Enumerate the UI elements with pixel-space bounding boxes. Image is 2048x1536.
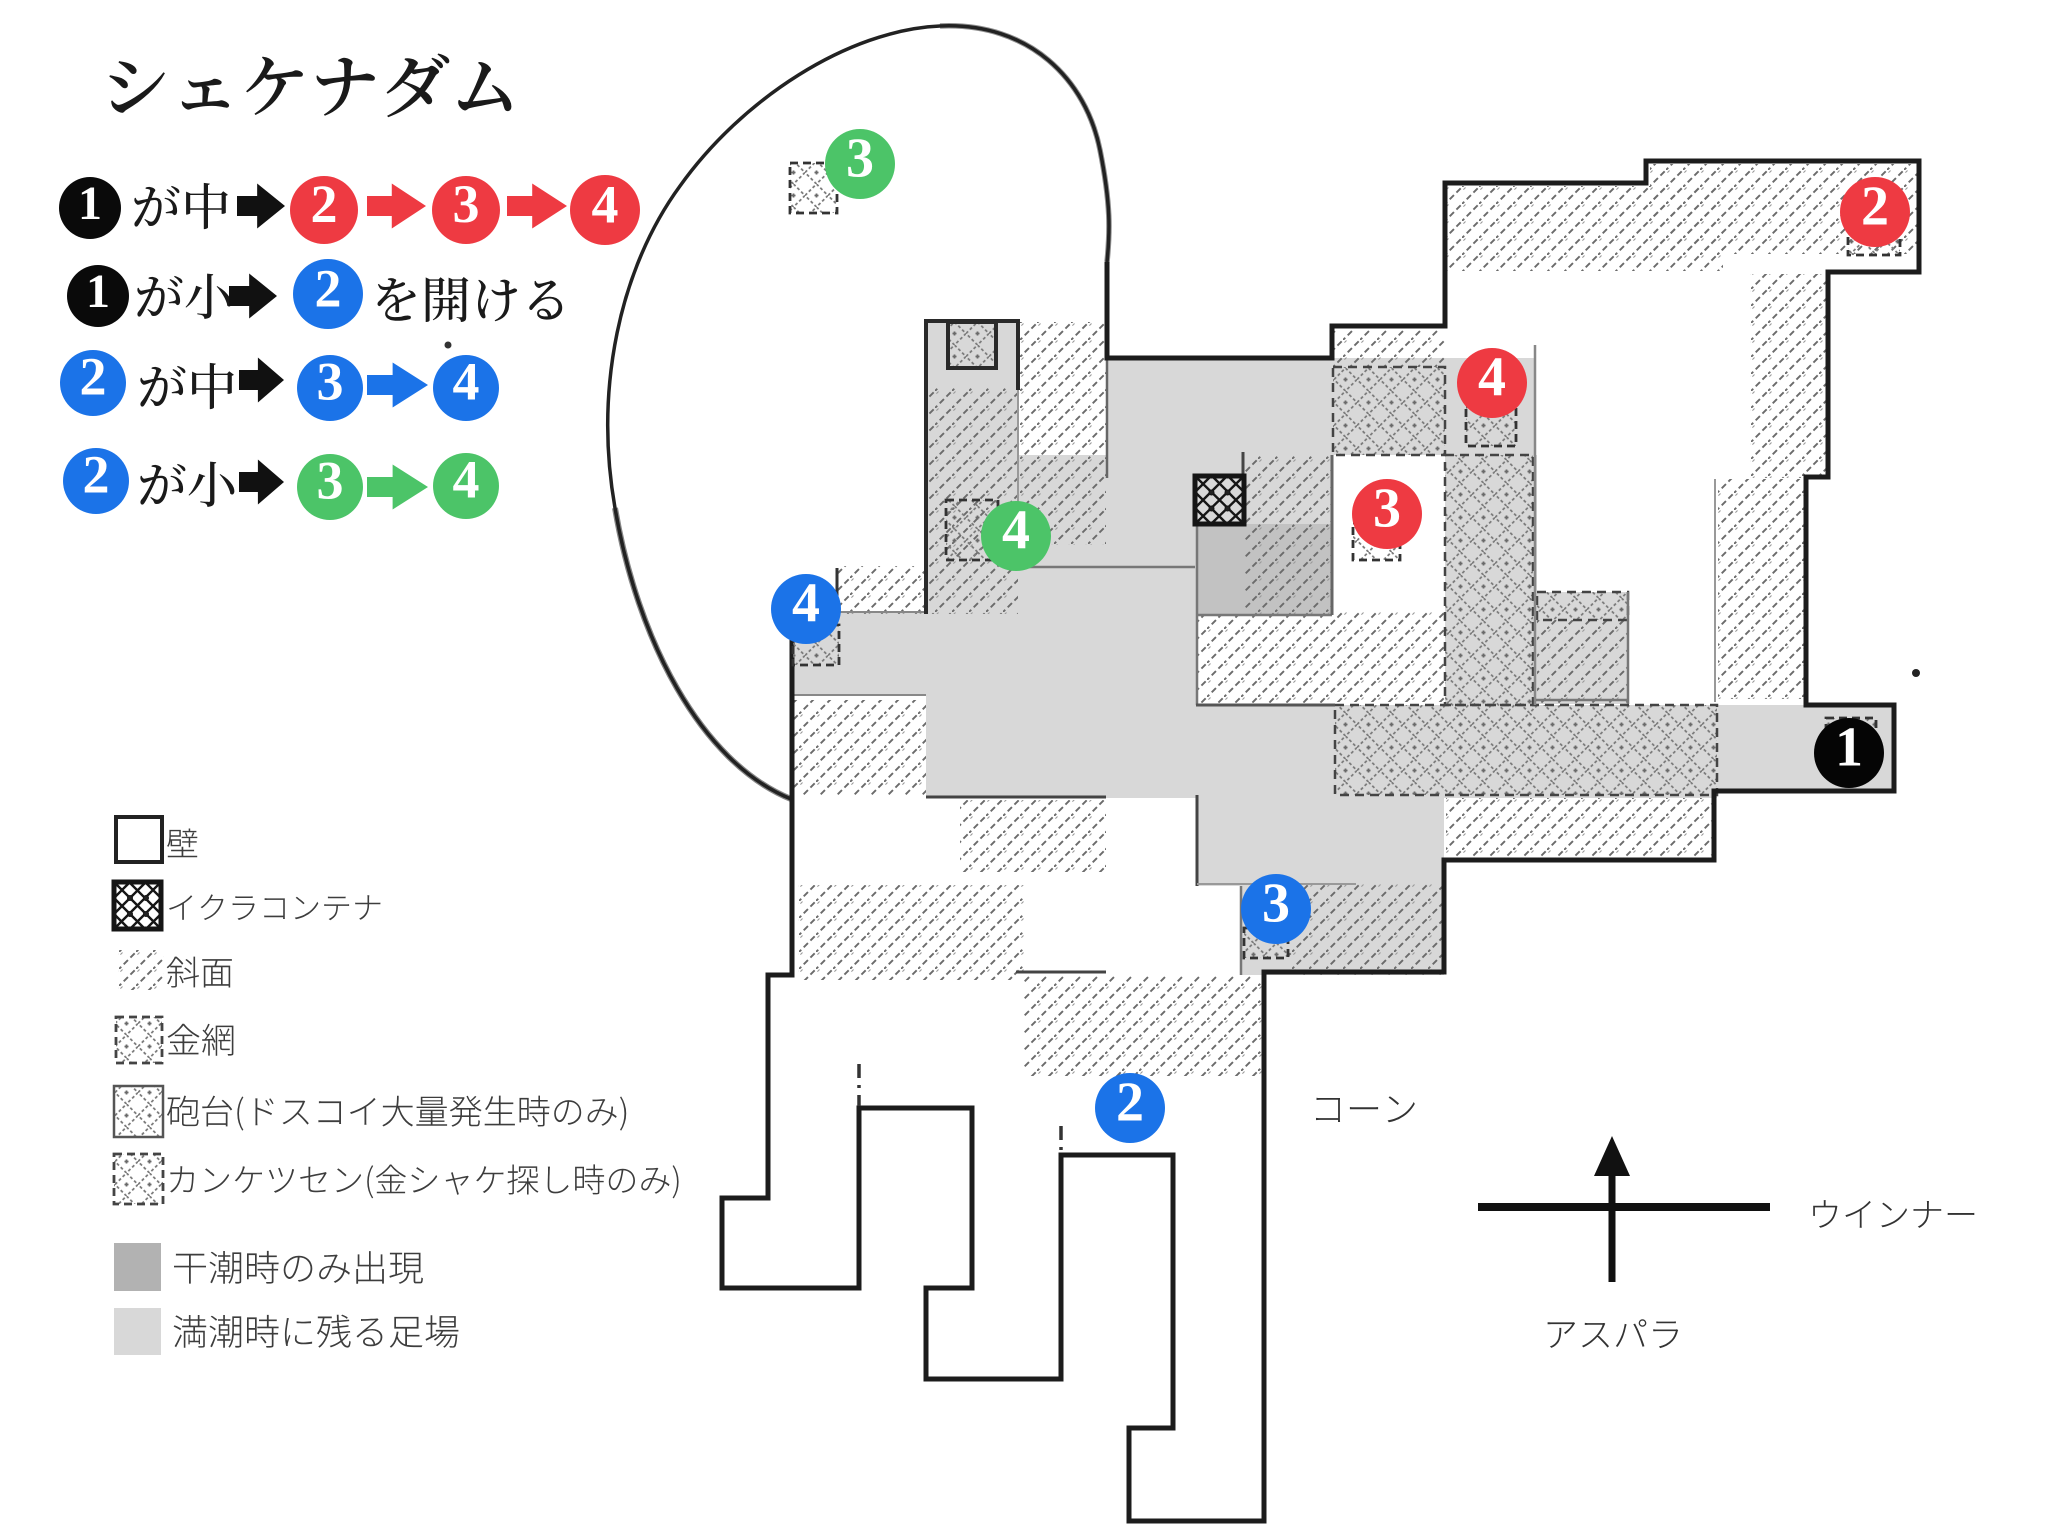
- svg-text:4: 4: [453, 352, 480, 412]
- svg-text:2: 2: [315, 258, 342, 318]
- svg-text:3: 3: [1262, 872, 1290, 934]
- svg-text:2: 2: [80, 347, 107, 407]
- svg-text:2: 2: [1116, 1071, 1144, 1133]
- svg-text:4: 4: [1002, 499, 1030, 561]
- svg-text:3: 3: [317, 451, 344, 511]
- svg-text:2: 2: [83, 445, 110, 505]
- svg-text:1: 1: [78, 177, 102, 230]
- svg-text:2: 2: [1861, 175, 1889, 237]
- svg-text:4: 4: [453, 450, 480, 510]
- svg-text:3: 3: [453, 174, 480, 234]
- svg-text:1: 1: [86, 265, 110, 318]
- svg-text:4: 4: [792, 572, 820, 634]
- svg-text:4: 4: [592, 174, 619, 234]
- svg-text:4: 4: [1478, 346, 1506, 408]
- svg-text:1: 1: [1835, 716, 1863, 778]
- svg-text:3: 3: [846, 127, 874, 189]
- svg-text:3: 3: [1373, 477, 1401, 539]
- svg-text:2: 2: [311, 174, 338, 234]
- svg-text:3: 3: [317, 352, 344, 412]
